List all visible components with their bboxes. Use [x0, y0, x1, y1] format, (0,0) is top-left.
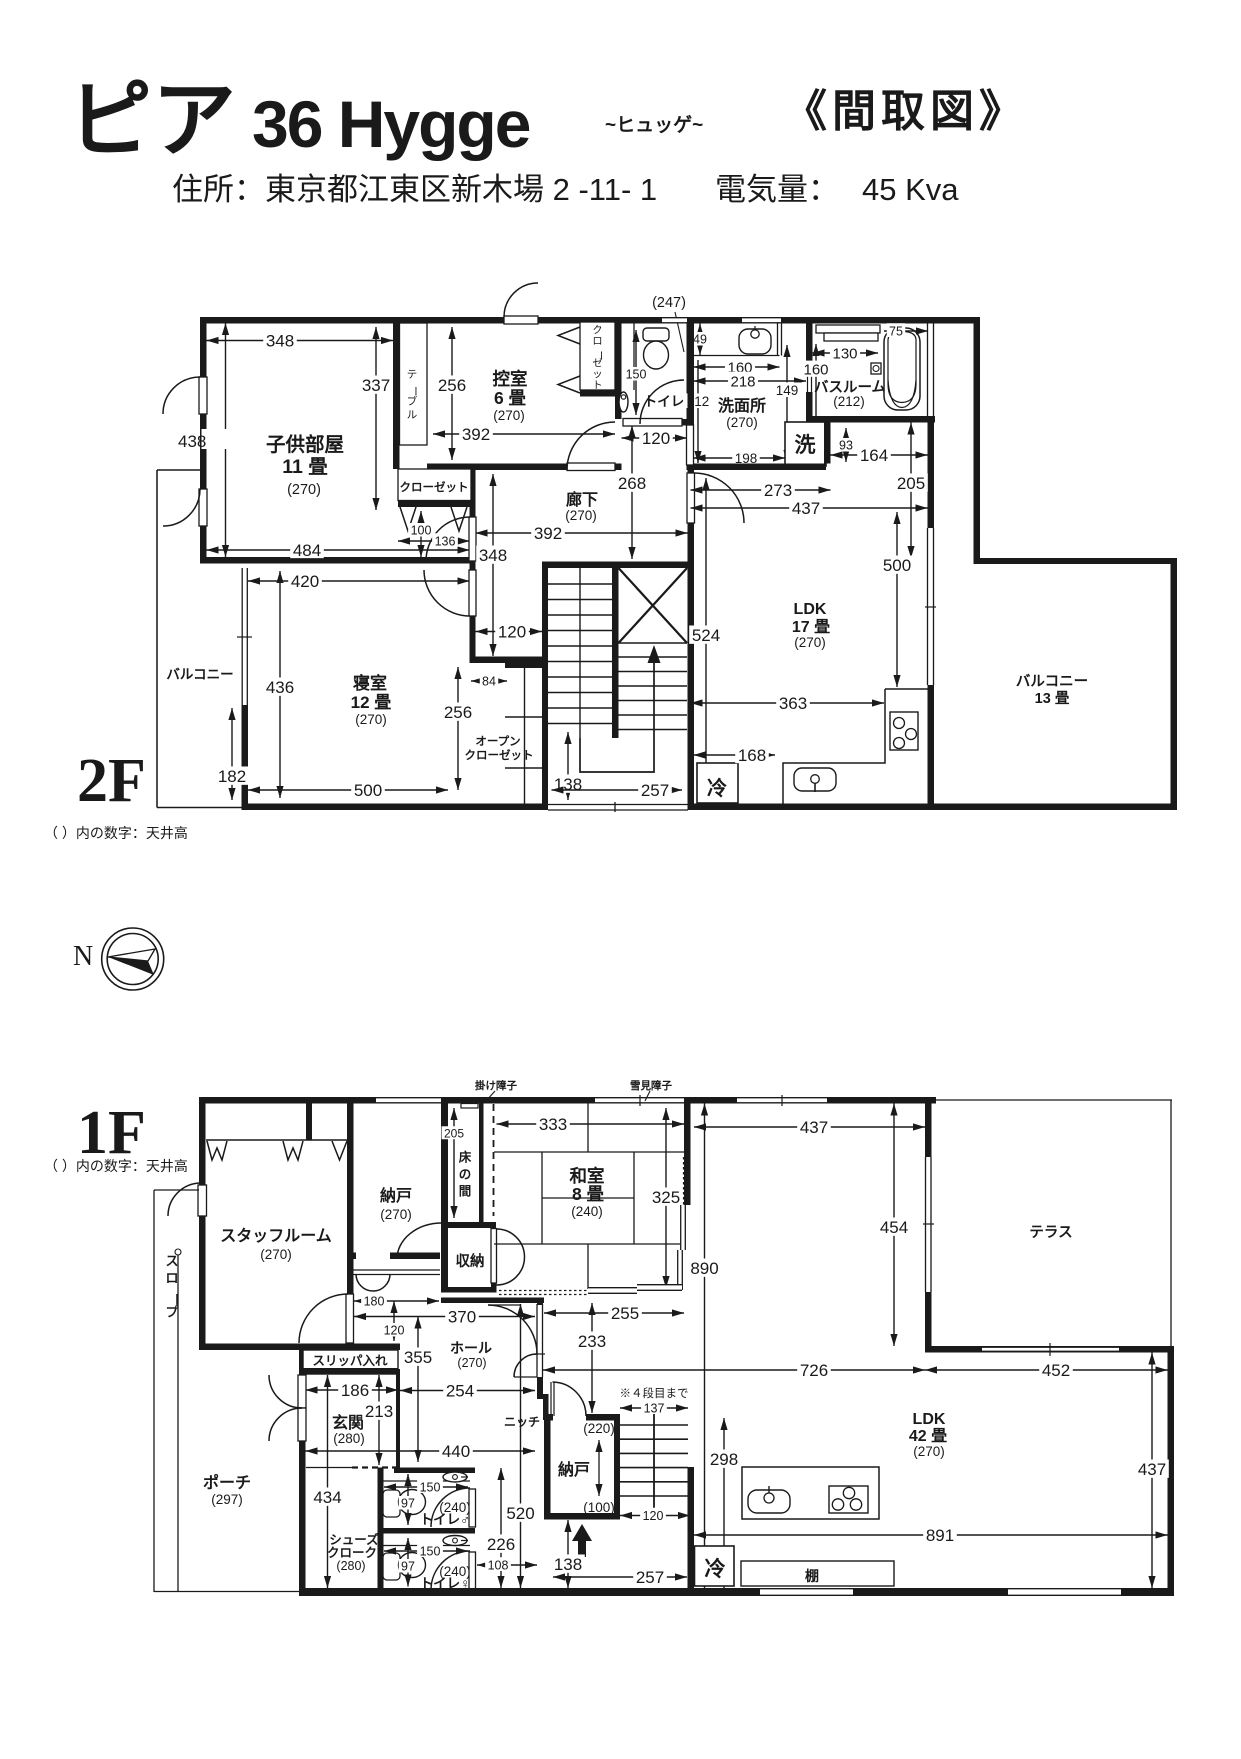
svg-text:256: 256 — [444, 703, 472, 722]
svg-text:370: 370 — [448, 1308, 476, 1327]
svg-text:(247): (247) — [652, 295, 686, 311]
svg-text:500: 500 — [354, 781, 382, 800]
svg-text:233: 233 — [578, 1332, 606, 1351]
svg-text:の: の — [459, 1167, 472, 1181]
svg-text:255: 255 — [611, 1304, 639, 1323]
svg-text:298: 298 — [710, 1450, 738, 1469]
svg-text:42 畳: 42 畳 — [909, 1427, 947, 1445]
svg-text:337: 337 — [362, 376, 390, 395]
svg-text:間: 間 — [459, 1184, 472, 1198]
svg-text:392: 392 — [462, 425, 490, 444]
svg-text:(100): (100) — [583, 1500, 615, 1515]
svg-text:97: 97 — [401, 1497, 415, 1511]
svg-text:和室: 和室 — [570, 1166, 605, 1186]
svg-text:(297): (297) — [211, 1492, 243, 1507]
svg-text:スリッパ入れ: スリッパ入れ — [312, 1354, 388, 1368]
svg-text:182: 182 — [218, 767, 246, 786]
svg-text:437: 437 — [1138, 1460, 1166, 1479]
svg-text:8 畳: 8 畳 — [572, 1184, 605, 1204]
svg-text:120: 120 — [643, 1509, 664, 1523]
svg-text:890: 890 — [690, 1259, 718, 1278]
svg-text:N: N — [73, 941, 93, 972]
svg-text:控室: 控室 — [493, 369, 528, 389]
svg-text:(270): (270) — [493, 408, 525, 423]
svg-text:掛け障子: 掛け障子 — [475, 1079, 517, 1092]
svg-text:ホール: ホール — [450, 1340, 492, 1356]
svg-text:180: 180 — [364, 1295, 385, 1309]
svg-text:納戸: 納戸 — [380, 1186, 412, 1205]
svg-text:6 畳: 6 畳 — [494, 388, 527, 408]
svg-text:348: 348 — [266, 332, 294, 351]
svg-text:520: 520 — [506, 1504, 534, 1523]
svg-text:257: 257 — [636, 1568, 664, 1587]
svg-text:149: 149 — [776, 383, 799, 398]
svg-text:120: 120 — [498, 623, 526, 642]
svg-text:ロ: ロ — [592, 337, 602, 348]
svg-text:(240): (240) — [571, 1204, 603, 1219]
svg-text:392: 392 — [534, 524, 562, 543]
svg-text:150: 150 — [420, 1545, 441, 1559]
svg-text:268: 268 — [618, 474, 646, 493]
svg-text:1F: 1F — [77, 1099, 146, 1167]
svg-text:45 Kva: 45 Kva — [862, 172, 959, 207]
svg-text:納戸: 納戸 — [558, 1460, 590, 1479]
svg-text:2F: 2F — [77, 747, 146, 815]
svg-text:120: 120 — [384, 1324, 405, 1338]
svg-text:84: 84 — [482, 675, 496, 689]
svg-text:(270): (270) — [287, 482, 321, 498]
svg-text:床: 床 — [459, 1149, 472, 1164]
svg-text:164: 164 — [860, 446, 888, 465]
svg-text:（ ）内の数字：天井高: （ ）内の数字：天井高 — [44, 825, 188, 841]
svg-text:LDK: LDK — [913, 1411, 946, 1428]
svg-text:スタッフルーム: スタッフルーム — [220, 1227, 332, 1245]
svg-text:棚: 棚 — [805, 1568, 819, 1584]
svg-text:500: 500 — [883, 556, 911, 575]
svg-text:雪見障子: 雪見障子 — [630, 1079, 672, 1092]
svg-text:ッ: ッ — [592, 370, 602, 381]
svg-text:254: 254 — [446, 1382, 474, 1401]
svg-text:150: 150 — [420, 1481, 441, 1495]
svg-text:(280): (280) — [333, 1431, 365, 1446]
svg-text:洗: 洗 — [795, 434, 816, 457]
svg-text:333: 333 — [539, 1115, 567, 1134]
svg-text:ゼ: ゼ — [592, 358, 602, 370]
svg-text:バルコニー: バルコニー — [1016, 673, 1088, 690]
svg-text:ク: ク — [592, 325, 602, 337]
svg-text:218: 218 — [730, 373, 755, 390]
svg-text:726: 726 — [800, 1361, 828, 1380]
svg-text:440: 440 — [442, 1442, 470, 1461]
svg-text:100: 100 — [411, 524, 432, 538]
svg-text:226: 226 — [487, 1535, 515, 1554]
svg-text:213: 213 — [365, 1402, 393, 1421]
svg-text:454: 454 — [880, 1218, 908, 1237]
svg-text:（ ）内の数字：天井高: （ ）内の数字：天井高 — [44, 1158, 188, 1174]
svg-text:138: 138 — [554, 1555, 582, 1574]
svg-text:ニッチ: ニッチ — [504, 1415, 540, 1429]
svg-text:(212): (212) — [833, 394, 865, 409]
svg-text:363: 363 — [779, 694, 807, 713]
svg-text:168: 168 — [738, 746, 766, 765]
svg-text:256: 256 — [438, 376, 466, 395]
svg-text:120: 120 — [642, 429, 670, 448]
svg-text:13 畳: 13 畳 — [1035, 690, 1070, 707]
svg-text:(270): (270) — [457, 1356, 486, 1370]
svg-text:12 畳: 12 畳 — [351, 693, 392, 712]
svg-text:(220): (220) — [583, 1421, 615, 1436]
svg-text:冷: 冷 — [707, 776, 727, 800]
svg-text:(280): (280) — [336, 1559, 365, 1573]
svg-text:49: 49 — [693, 333, 707, 347]
svg-text:洗面所: 洗面所 — [718, 396, 766, 415]
svg-text:(270): (270) — [565, 508, 597, 523]
svg-text:子供部屋: 子供部屋 — [266, 433, 344, 456]
svg-text:玄関: 玄関 — [332, 1413, 364, 1432]
svg-text:108: 108 — [488, 1559, 509, 1573]
svg-text:137: 137 — [644, 1402, 665, 1416]
svg-text:(270): (270) — [726, 415, 758, 430]
svg-text:テラス: テラス — [1029, 1225, 1072, 1241]
svg-text:ス: ス — [165, 1254, 178, 1269]
svg-text:11 畳: 11 畳 — [282, 456, 328, 478]
svg-text:ブ: ブ — [407, 395, 418, 408]
svg-text:97: 97 — [401, 1560, 415, 1574]
svg-text:電気量：: 電気量： — [715, 172, 839, 207]
svg-text:(270): (270) — [794, 635, 826, 650]
svg-text:891: 891 — [926, 1526, 954, 1545]
svg-text:ト: ト — [592, 381, 602, 392]
svg-text:186: 186 — [341, 1381, 369, 1400]
svg-text:436: 436 — [266, 678, 294, 697]
svg-text:廊下: 廊下 — [566, 490, 598, 509]
svg-text:《間取図》: 《間取図》 — [783, 87, 1028, 136]
svg-text:バルコニー: バルコニー — [166, 667, 233, 682]
svg-text:75: 75 — [889, 325, 903, 339]
svg-text:136: 136 — [435, 535, 456, 549]
svg-text:355: 355 — [404, 1348, 432, 1367]
svg-text:(270): (270) — [380, 1207, 412, 1222]
svg-text:ロ: ロ — [165, 1271, 178, 1286]
svg-text:325: 325 — [652, 1188, 680, 1207]
svg-text:※４段目まで: ※４段目まで — [620, 1386, 689, 1400]
svg-text:クローゼット: クローゼット — [465, 748, 534, 762]
svg-text:437: 437 — [792, 499, 820, 518]
svg-text:~ヒュッゲ~: ~ヒュッゲ~ — [605, 114, 703, 136]
svg-text:524: 524 — [692, 626, 720, 645]
svg-text:寝室: 寝室 — [353, 673, 387, 693]
svg-text:シューズ: シューズ — [329, 1532, 379, 1547]
svg-text:住所：東京都江東区新木場 2 -11- 1: 住所：東京都江東区新木場 2 -11- 1 — [172, 172, 657, 207]
svg-text:トイレ♂: トイレ♂ — [420, 1512, 471, 1527]
svg-text:(270): (270) — [913, 1444, 945, 1459]
svg-text:(270): (270) — [355, 712, 387, 727]
svg-text:150: 150 — [626, 368, 647, 382]
svg-text:収納: 収納 — [456, 1252, 485, 1270]
svg-text:205: 205 — [897, 474, 925, 493]
svg-text:420: 420 — [291, 572, 319, 591]
svg-text:437: 437 — [800, 1118, 828, 1137]
svg-text:130: 130 — [832, 345, 857, 362]
svg-text:ピア: ピア — [68, 73, 236, 167]
svg-text:クローゼット: クローゼット — [400, 480, 469, 494]
svg-text:ポーチ: ポーチ — [203, 1473, 251, 1492]
svg-text:484: 484 — [293, 541, 321, 560]
svg-text:205: 205 — [444, 1126, 464, 1140]
svg-text:160: 160 — [803, 361, 828, 378]
svg-text:257: 257 — [641, 781, 669, 800]
svg-text:438: 438 — [178, 432, 206, 451]
svg-text:452: 452 — [1042, 1361, 1070, 1380]
svg-text:LDK: LDK — [794, 601, 827, 618]
svg-text:ル: ル — [407, 409, 418, 421]
svg-text:273: 273 — [764, 481, 792, 500]
svg-text:36 Hygge: 36 Hygge — [252, 87, 530, 161]
svg-text:プ: プ — [165, 1305, 179, 1320]
svg-text:93: 93 — [839, 439, 853, 453]
svg-text:冷: 冷 — [705, 1557, 726, 1581]
svg-text:348: 348 — [479, 546, 507, 565]
svg-text:434: 434 — [313, 1488, 341, 1507]
svg-text:オープン: オープン — [475, 734, 520, 748]
svg-text:クローク: クローク — [327, 1546, 377, 1560]
svg-text:テ: テ — [407, 369, 418, 381]
svg-text:17 畳: 17 畳 — [792, 618, 830, 636]
svg-text:(270): (270) — [260, 1247, 292, 1262]
